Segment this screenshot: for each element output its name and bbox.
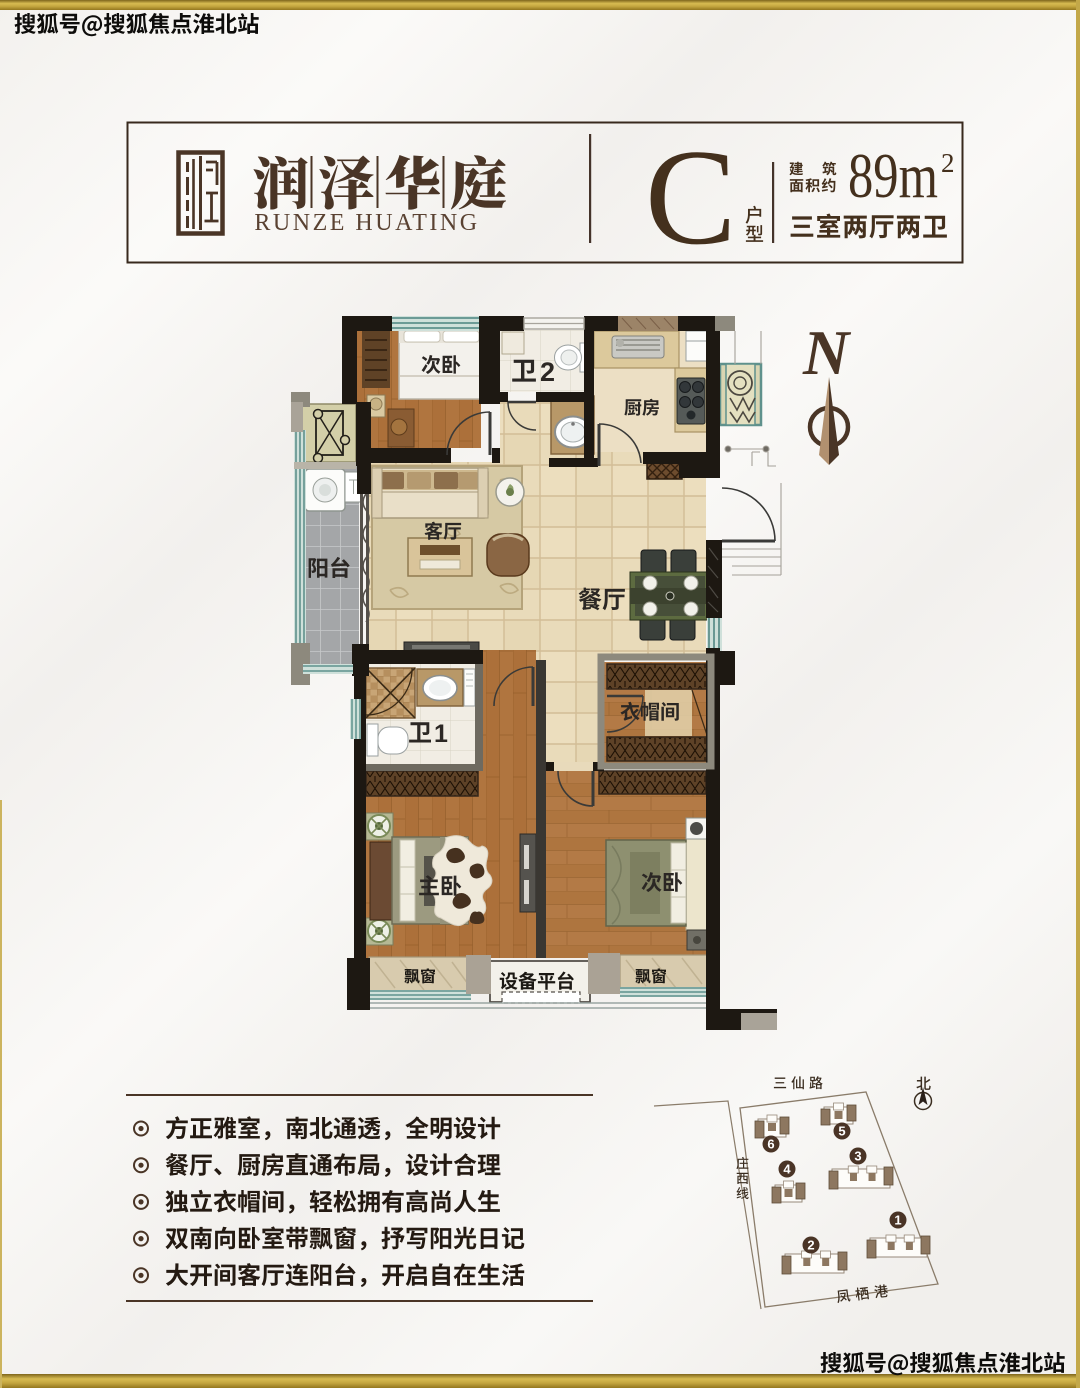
svg-text:6: 6 (767, 1137, 774, 1152)
svg-text:3: 3 (854, 1149, 861, 1164)
svg-text:1: 1 (434, 720, 448, 748)
svg-text:N: N (802, 317, 852, 388)
svg-text:2: 2 (941, 148, 955, 178)
svg-text:4: 4 (783, 1162, 791, 1177)
svg-text:2: 2 (807, 1238, 814, 1253)
svg-text:1: 1 (894, 1213, 901, 1228)
svg-text:RUNZE HUATING: RUNZE HUATING (254, 210, 479, 236)
svg-text:89m: 89m (848, 140, 938, 211)
svg-text:5: 5 (838, 1124, 845, 1139)
svg-text:C: C (645, 121, 736, 273)
svg-text:2: 2 (540, 357, 555, 387)
